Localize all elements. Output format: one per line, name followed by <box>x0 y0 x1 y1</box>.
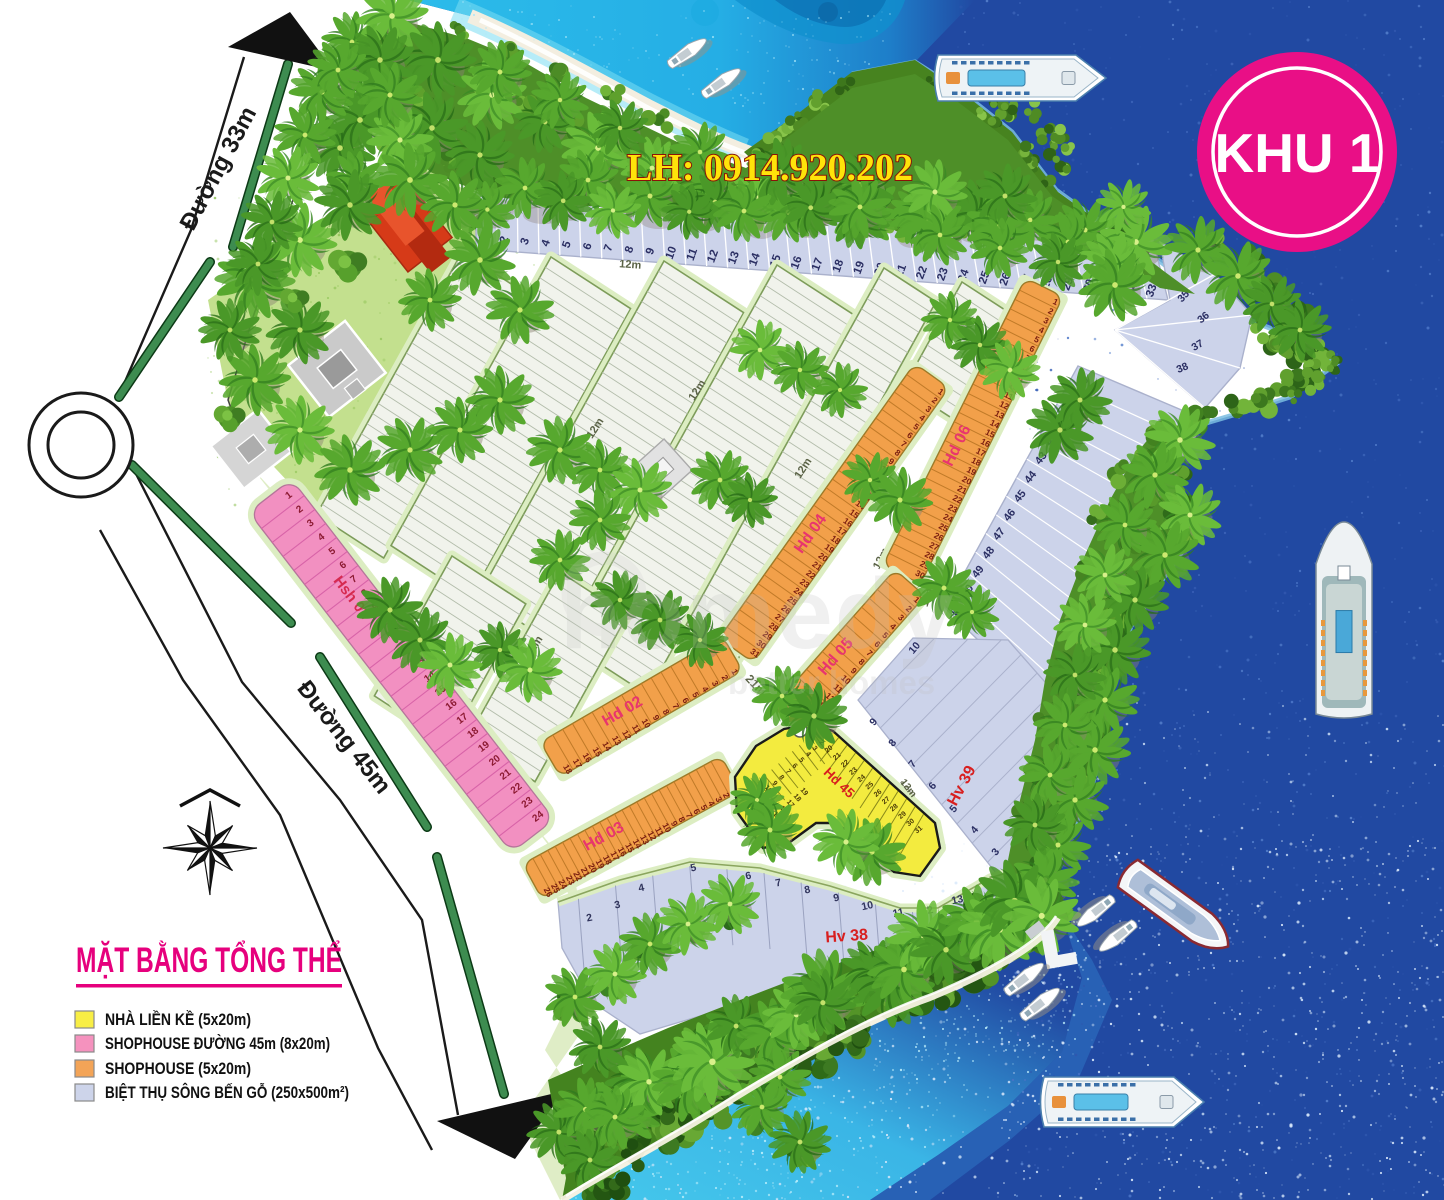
svg-text:MẶT BẰNG TỔNG THỂ: MẶT BẰNG TỔNG THỂ <box>76 940 342 980</box>
svg-text:NHÀ LIỀN KỀ (5x20m): NHÀ LIỀN KỀ (5x20m) <box>105 1010 251 1029</box>
svg-text:SHOPHOUSE ĐƯỜNG 45m (8x20m): SHOPHOUSE ĐƯỜNG 45m (8x20m) <box>105 1034 330 1053</box>
svg-text:BIỆT THỤ SÔNG BẾN GỖ (250x500m: BIỆT THỤ SÔNG BẾN GỖ (250x500m²) <box>105 1083 349 1102</box>
svg-text:12m: 12m <box>619 258 642 272</box>
svg-text:SHOPHOUSE (5x20m): SHOPHOUSE (5x20m) <box>105 1060 251 1078</box>
